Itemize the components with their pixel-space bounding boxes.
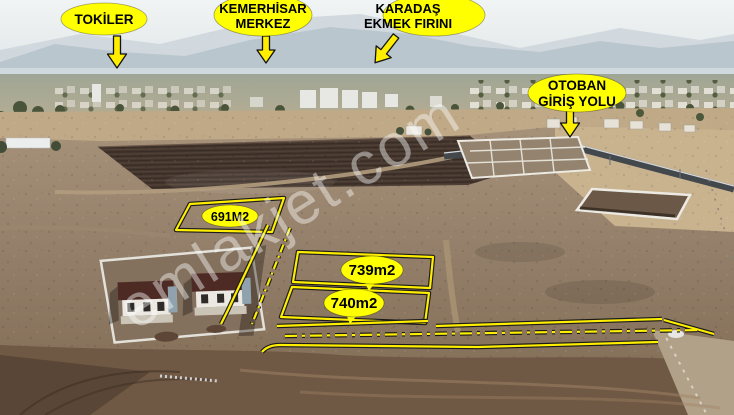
kemerhisar-label-line2: MERKEZ xyxy=(236,16,291,31)
annotated-aerial-photo: TOKİLER KEMERHİSAR MERKEZ KARADAŞ EKMEK … xyxy=(0,0,734,415)
parcel-739-label: 739m2 xyxy=(349,262,396,279)
warehouse xyxy=(6,138,50,148)
otoban-balloon: OTOBAN GİRİŞ YOLU xyxy=(528,74,626,112)
karadas-label-line1: KARADAŞ xyxy=(376,1,441,16)
otoban-label-line2: GİRİŞ YOLU xyxy=(538,94,616,109)
karadas-label-line2: EKMEK FIRINI xyxy=(364,16,452,31)
scene: TOKİLER KEMERHİSAR MERKEZ KARADAŞ EKMEK … xyxy=(0,0,734,415)
kemerhisar-label-line1: KEMERHİSAR xyxy=(219,1,307,16)
tokiler-label: TOKİLER xyxy=(74,12,133,27)
otoban-label-line1: OTOBAN xyxy=(548,78,606,93)
parcel-740-label: 740m2 xyxy=(331,295,378,312)
construction-site xyxy=(458,137,590,178)
karadas-balloon: KARADAŞ EKMEK FIRINI xyxy=(364,0,485,36)
tokiler-balloon: TOKİLER xyxy=(61,3,147,35)
